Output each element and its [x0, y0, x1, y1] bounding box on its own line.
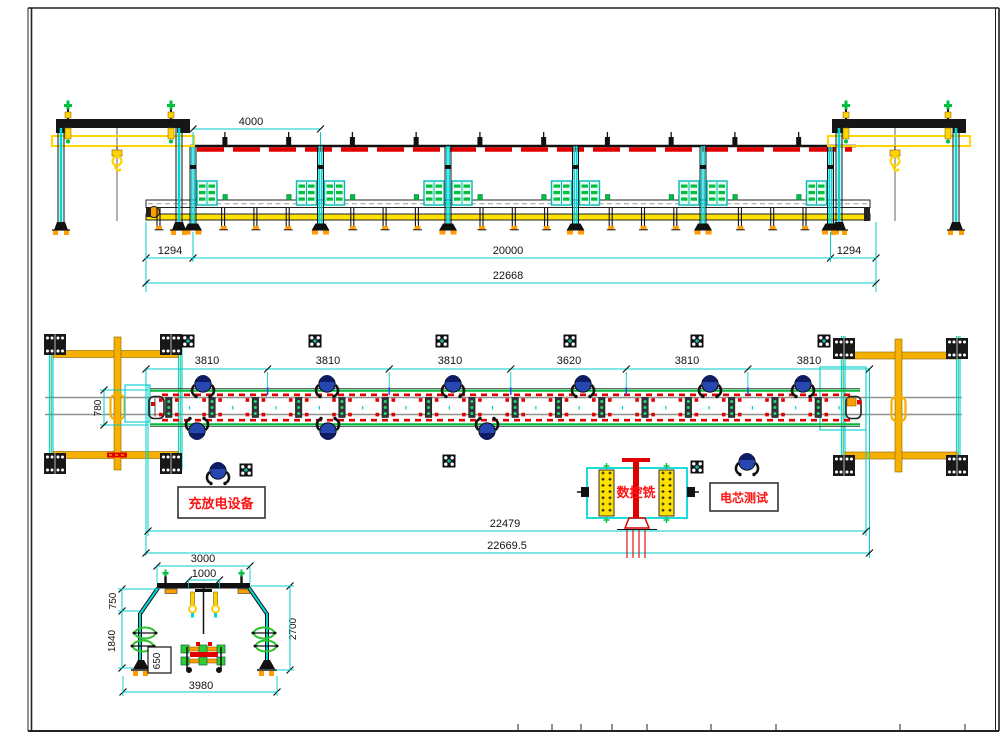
elevation-geometry — [52, 101, 970, 236]
plan-dim-5: 3810 — [675, 355, 699, 367]
end-dim-bottom: 3980 — [189, 680, 213, 692]
plan-dim-1: 3810 — [195, 355, 219, 367]
end-dim-cart: 650 — [152, 652, 163, 669]
end-dim-upper-left: 750 — [108, 592, 119, 609]
plan-view: 3810 3810 3810 3620 3810 3810 780 22479 … — [44, 334, 968, 558]
plan-dim-4: 3620 — [557, 355, 581, 367]
cad-drawing-screenshot: 4000 1294 20000 1294 22668 3810 3810 381… — [0, 0, 1007, 739]
end-dim-top-outer: 3000 — [191, 553, 215, 565]
dim-bay: 4000 — [239, 116, 263, 128]
charge-label: 充放电设备 — [188, 496, 254, 511]
test-label: 电芯测试 — [720, 490, 768, 505]
cnc-label: 数控铣 — [616, 485, 655, 500]
dim-span: 20000 — [493, 245, 524, 257]
plan-dim-outer-total: 22669.5 — [487, 540, 527, 552]
drawing-canvas: 4000 1294 20000 1294 22668 3810 3810 381… — [0, 0, 1007, 739]
plan-dim-width: 780 — [93, 399, 104, 416]
plan-dim-3: 3810 — [438, 355, 462, 367]
elevation-view: 4000 1294 20000 1294 22668 — [52, 101, 970, 293]
dim-total: 22668 — [493, 270, 524, 282]
dim-right-overhang: 1294 — [837, 245, 861, 257]
plan-dim-6: 3810 — [797, 355, 821, 367]
end-dim-lower-left: 1840 — [107, 629, 118, 652]
dim-left-overhang: 1294 — [158, 245, 182, 257]
end-view: 3000 1000 750 1840 650 2700 3980 — [107, 553, 299, 696]
end-dim-top-inner: 1000 — [192, 568, 216, 580]
plan-dim-inner-total: 22479 — [490, 518, 521, 530]
plan-dim-2: 3810 — [316, 355, 340, 367]
